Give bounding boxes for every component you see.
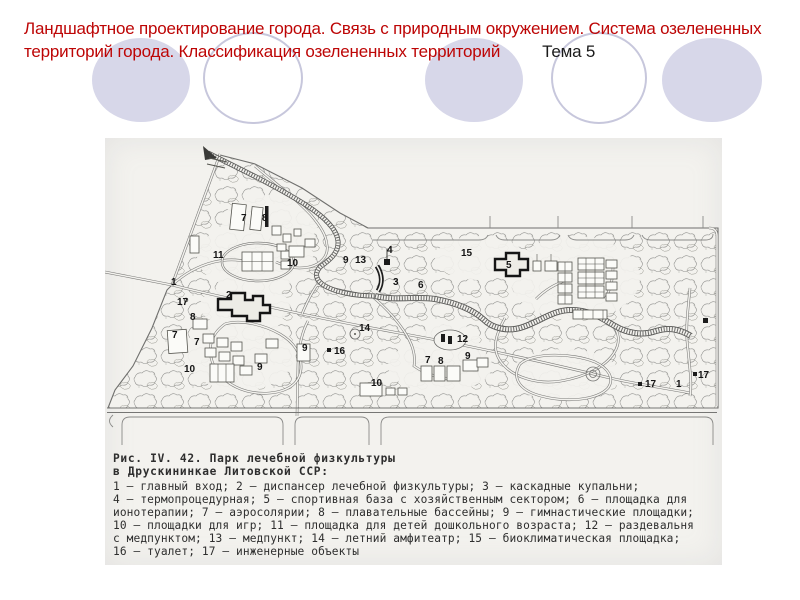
map-label-13: 13 [355, 255, 367, 266]
presentation-slide: Ландшафтное проектирование города. Связь… [0, 0, 800, 600]
map-label-8: 8 [438, 356, 444, 367]
map-label-8: 8 [262, 213, 268, 224]
map-label-17: 17 [645, 379, 657, 390]
legend-line: ионотерапии; 7 — аэросолярии; 8 — плават… [113, 506, 719, 519]
legend-line: 4 — термопроцедурная; 5 — спортивная баз… [113, 493, 719, 506]
caption-title-line2: в Друскининкае Литовской ССР: [113, 465, 719, 478]
map-label-11: 11 [213, 250, 224, 261]
map-label-14: 14 [359, 323, 371, 334]
map-label-3: 3 [393, 277, 399, 288]
map-label-7: 7 [241, 213, 247, 224]
scanned-figure: 7811109134361551172877109914161278910171… [105, 138, 722, 565]
map-label-6: 6 [418, 280, 424, 291]
legend-line: 10 — площадки для игр; 11 — площадка для… [113, 519, 719, 532]
map-label-12: 12 [457, 334, 469, 345]
map-label-7: 7 [425, 355, 431, 366]
map-label-17: 17 [177, 297, 189, 308]
map-label-1: 1 [171, 277, 177, 288]
park-plan-map: 7811109134361551172877109914161278910171… [105, 138, 722, 448]
figure-caption: Рис. IV. 42. Парк лечебной физкультуры в… [113, 452, 719, 558]
figure-legend: 1 — главный вход; 2 — диспансер лечебной… [113, 480, 719, 558]
map-label-9: 9 [302, 343, 308, 354]
map-label-7: 7 [194, 337, 200, 348]
map-label-17: 17 [698, 370, 710, 381]
legend-line: 1 — главный вход; 2 — диспансер лечебной… [113, 480, 719, 493]
legend-line: с медпунктом; 13 — медпункт; 14 — летний… [113, 532, 719, 545]
map-label-10: 10 [287, 258, 299, 269]
slide-title: Ландшафтное проектирование города. Связь… [24, 17, 769, 63]
map-label-9: 9 [465, 351, 471, 362]
bottom-street [107, 408, 717, 445]
slide-title-line2: территорий города. Классификация озелене… [24, 42, 500, 61]
map-label-7: 7 [172, 330, 178, 341]
caption-title-line1: Рис. IV. 42. Парк лечебной физкультуры [113, 452, 719, 465]
map-label-10: 10 [184, 364, 196, 375]
map-label-9: 9 [343, 255, 349, 266]
map-label-15: 15 [461, 248, 473, 259]
map-label-16: 16 [334, 346, 346, 357]
map-label-2: 2 [226, 290, 232, 301]
map-label-9: 9 [257, 362, 263, 373]
map-label-5: 5 [506, 260, 512, 271]
legend-line: 16 — туалет; 17 — инженерные объекты [113, 545, 719, 558]
map-label-8: 8 [190, 312, 196, 323]
map-label-4: 4 [387, 245, 393, 256]
topic-label: Тема 5 [542, 42, 595, 61]
slide-title-line1: Ландшафтное проектирование города. Связь… [24, 17, 769, 40]
map-label-10: 10 [371, 378, 383, 389]
map-label-1: 1 [676, 379, 682, 390]
